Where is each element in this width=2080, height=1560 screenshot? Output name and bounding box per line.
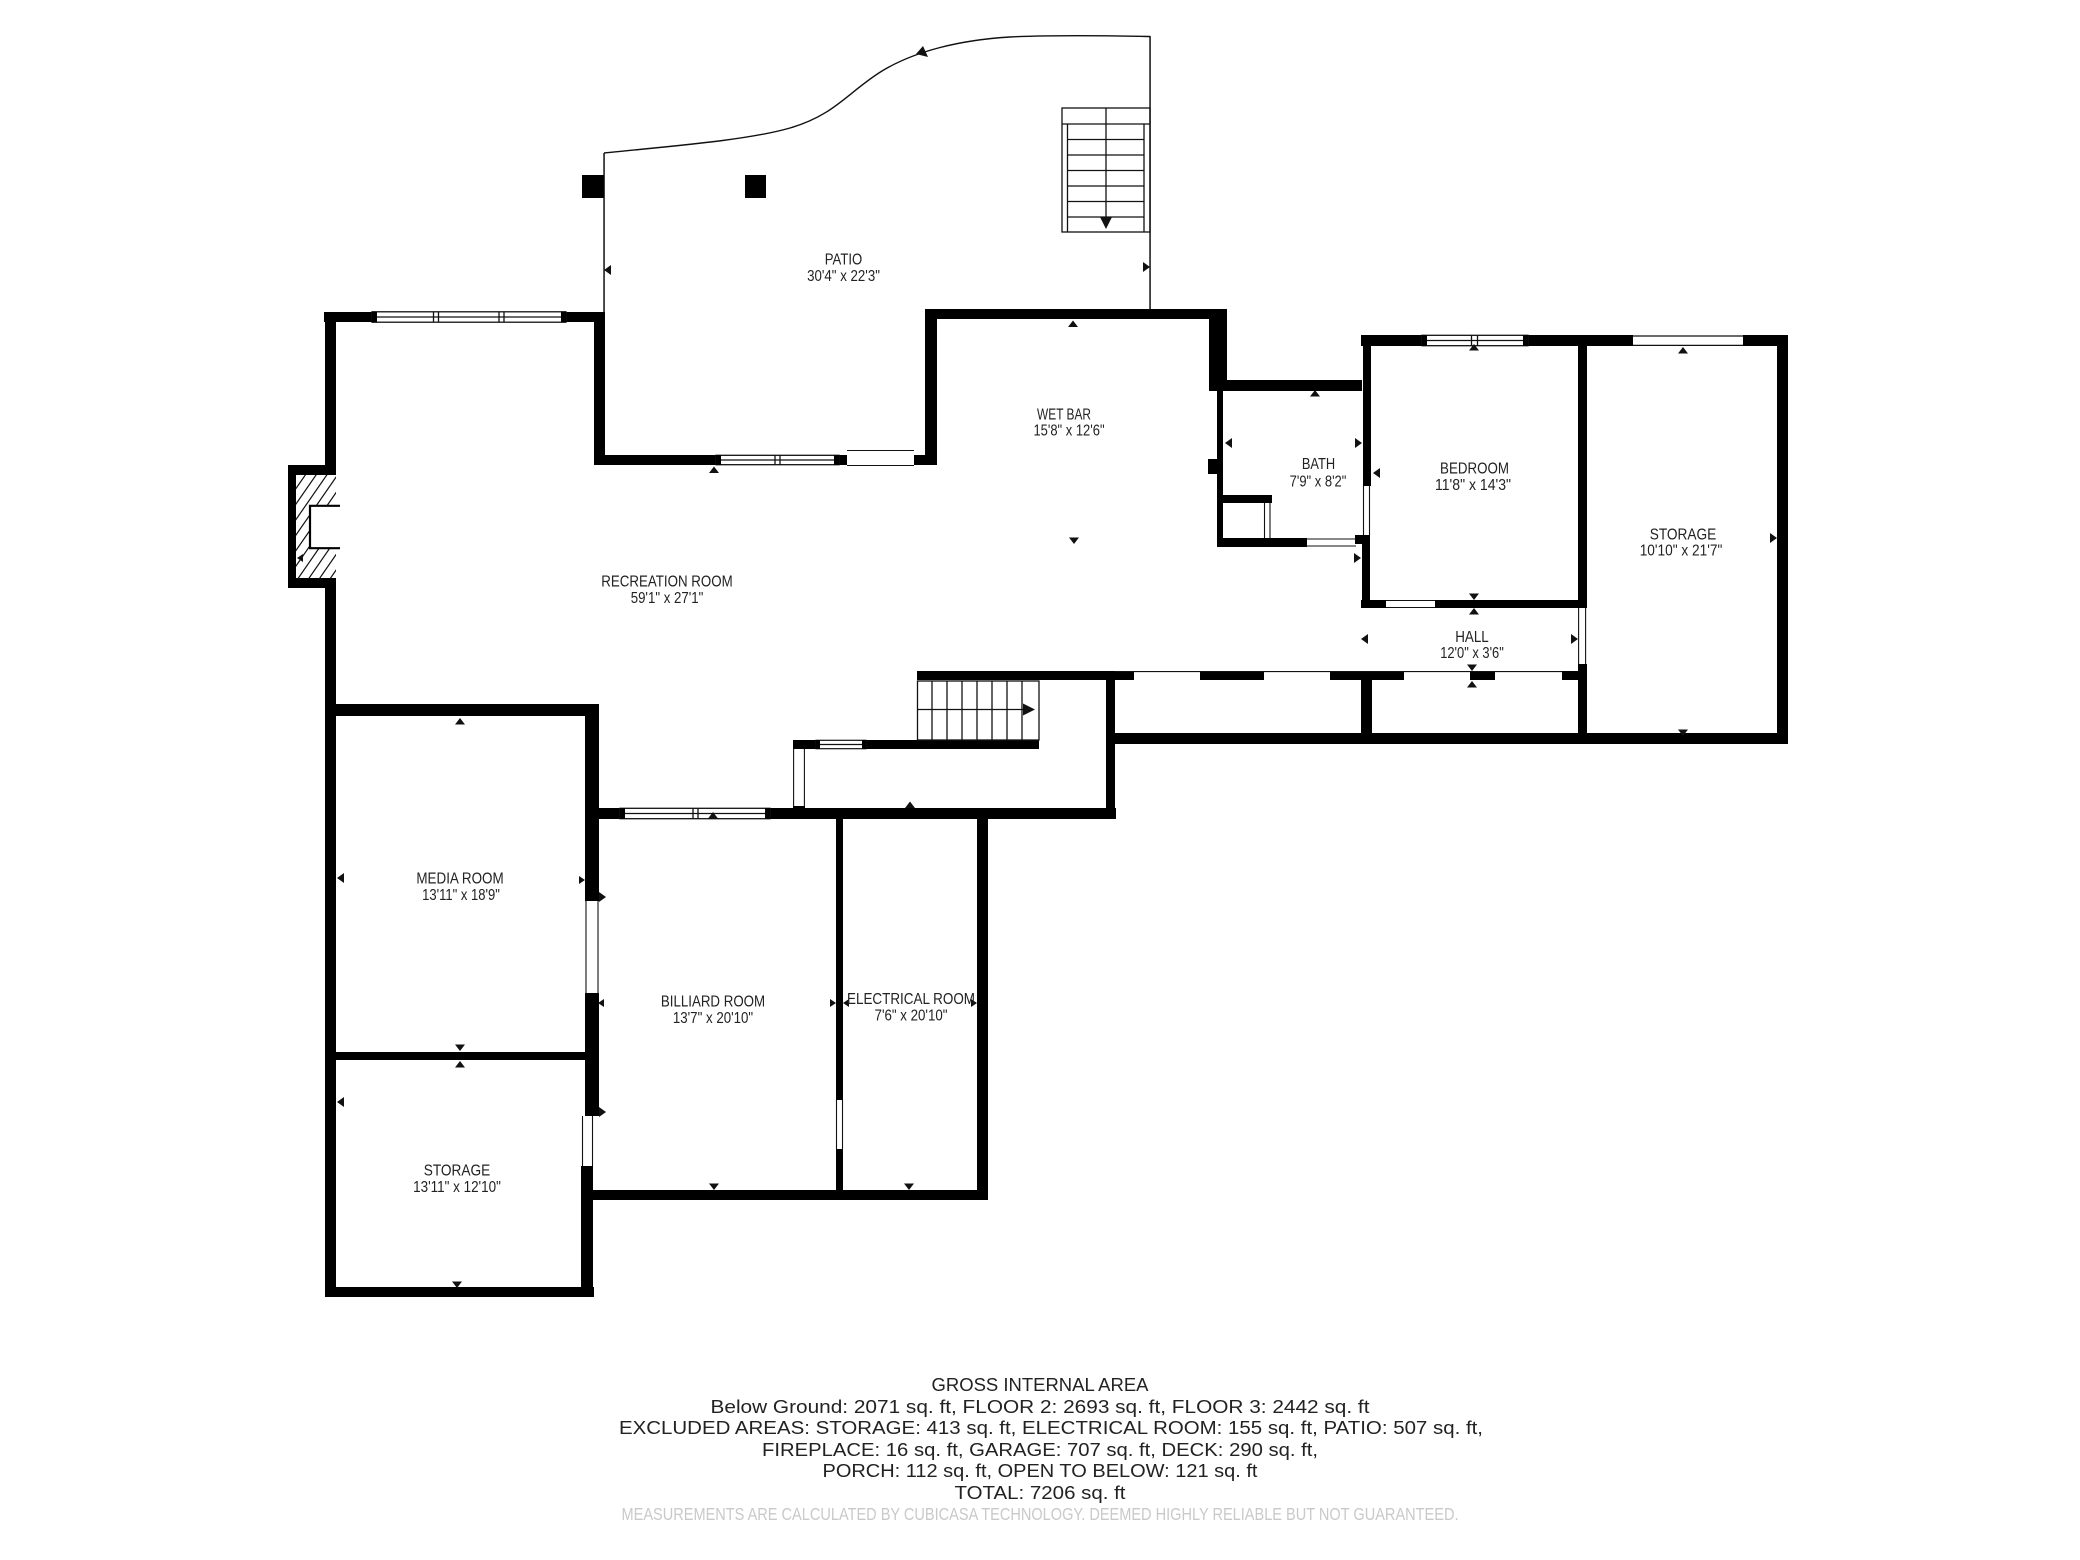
svg-text:11'8" x 14'3": 11'8" x 14'3"	[1435, 477, 1511, 494]
svg-text:STORAGE: STORAGE	[424, 1163, 491, 1180]
svg-text:Below Ground: 2071 sq. ft, FLO: Below Ground: 2071 sq. ft, FLOOR 2: 2693…	[711, 1397, 1370, 1417]
svg-text:BILLIARD ROOM: BILLIARD ROOM	[661, 994, 765, 1011]
svg-text:PATIO: PATIO	[825, 252, 863, 269]
svg-text:MEASUREMENTS ARE CALCULATED BY: MEASUREMENTS ARE CALCULATED BY CUBICASA …	[622, 1504, 1459, 1524]
svg-text:7'9" x 8'2": 7'9" x 8'2"	[1290, 474, 1347, 491]
svg-text:RECREATION ROOM: RECREATION ROOM	[601, 574, 732, 591]
svg-text:30'4" x 22'3": 30'4" x 22'3"	[807, 268, 880, 285]
svg-text:FIREPLACE: 16 sq. ft, GARAGE:: FIREPLACE: 16 sq. ft, GARAGE: 707 sq. ft…	[762, 1440, 1318, 1460]
svg-text:59'1" x 27'1": 59'1" x 27'1"	[631, 590, 704, 607]
svg-text:ELECTRICAL ROOM: ELECTRICAL ROOM	[847, 991, 975, 1008]
svg-text:PORCH: 112 sq. ft, OPEN TO BEL: PORCH: 112 sq. ft, OPEN TO BELOW: 121 sq…	[823, 1461, 1258, 1481]
svg-text:12'0" x 3'6": 12'0" x 3'6"	[1440, 645, 1504, 662]
svg-text:15'8" x 12'6": 15'8" x 12'6"	[1033, 423, 1104, 440]
svg-text:TOTAL: 7206 sq. ft: TOTAL: 7206 sq. ft	[955, 1483, 1126, 1503]
svg-text:MEDIA ROOM: MEDIA ROOM	[416, 871, 503, 888]
svg-text:BEDROOM: BEDROOM	[1440, 461, 1509, 478]
svg-text:STORAGE: STORAGE	[1650, 527, 1717, 544]
svg-text:10'10" x 21'7": 10'10" x 21'7"	[1640, 543, 1723, 560]
svg-text:13'11" x 12'10": 13'11" x 12'10"	[413, 1179, 501, 1196]
svg-text:EXCLUDED AREAS: STORAGE: 413 s: EXCLUDED AREAS: STORAGE: 413 sq. ft, ELE…	[619, 1418, 1483, 1438]
svg-text:7'6" x 20'10": 7'6" x 20'10"	[875, 1008, 948, 1025]
svg-text:GROSS INTERNAL AREA: GROSS INTERNAL AREA	[932, 1375, 1149, 1395]
svg-text:HALL: HALL	[1455, 629, 1489, 646]
svg-text:13'11" x 18'9": 13'11" x 18'9"	[422, 887, 500, 904]
svg-text:WET BAR: WET BAR	[1037, 407, 1091, 424]
svg-text:13'7" x 20'10": 13'7" x 20'10"	[673, 1010, 753, 1027]
svg-text:BATH: BATH	[1302, 456, 1335, 473]
